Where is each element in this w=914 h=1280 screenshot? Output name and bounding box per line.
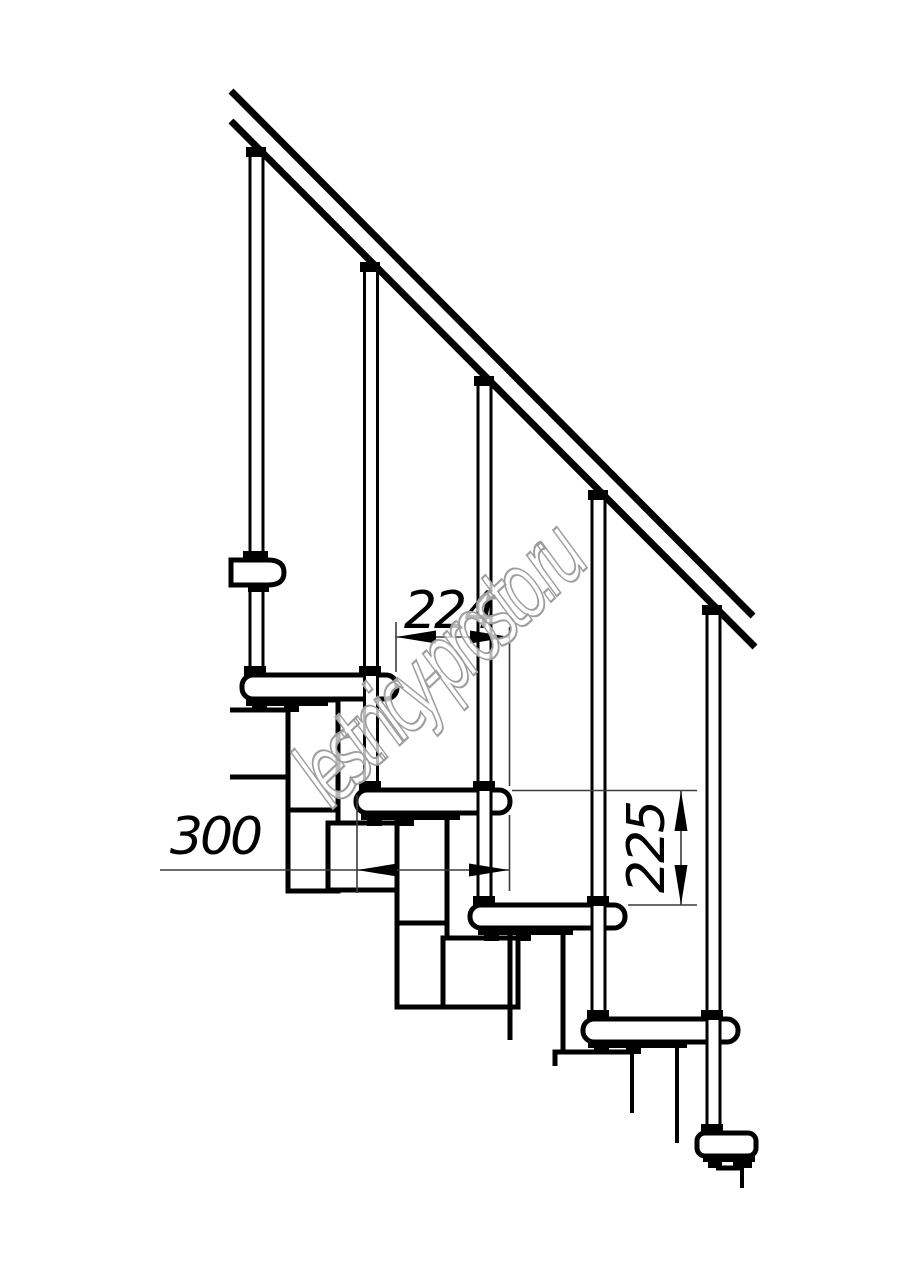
module-box-1	[328, 823, 405, 890]
module-column-2	[397, 813, 447, 1007]
tread-2-collar-right	[473, 781, 495, 791]
dim-225-label: 225	[617, 802, 677, 893]
tread-1-collar-left	[244, 666, 266, 676]
baluster-1-bracket-plate	[231, 560, 284, 585]
tread-3-collar-left	[473, 896, 495, 906]
baluster-1-bracket-collar-top	[243, 551, 268, 561]
tread-5-partial	[697, 1133, 756, 1156]
baluster-1-bracket-collar-bottom	[248, 583, 269, 592]
module-box-2	[443, 938, 518, 1007]
staircase-drawing-page: 224 300 225 lestnicy-prosto.ru	[0, 0, 914, 1280]
staircase-drawing: 224 300 225 lestnicy-prosto.ru	[0, 0, 914, 1280]
tread-5-collar	[701, 1124, 723, 1134]
tread-4-collar-right	[701, 1010, 723, 1020]
tread-4-collar-left	[587, 1010, 609, 1020]
baluster-1	[250, 155, 263, 675]
dim-300-label: 300	[170, 807, 261, 867]
baluster-5	[707, 611, 720, 1133]
tread-3-collar-right	[587, 896, 609, 906]
